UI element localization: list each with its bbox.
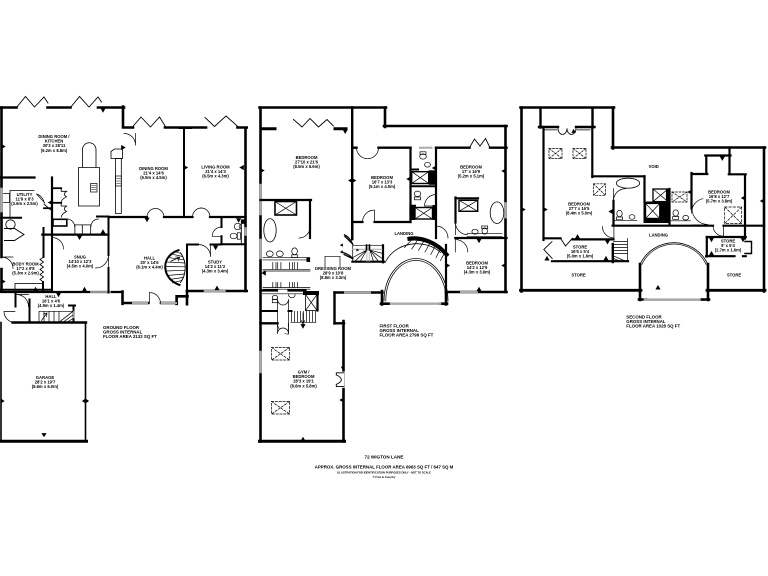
svg-text:APPROX. GROSS INTERNAL FLOOR A: APPROX. GROSS INTERNAL FLOOR AREA 6963 S… <box>315 464 454 469</box>
svg-text:STORE: STORE <box>571 272 586 277</box>
svg-text:LANDING: LANDING <box>394 231 413 236</box>
svg-text:BEDROOM27'10 x 21'6(8.5m x 6.6: BEDROOM27'10 x 21'6(8.5m x 6.6m) <box>293 155 320 169</box>
svg-text:72 WIGTON LANE: 72 WIGTON LANE <box>365 455 404 460</box>
svg-text:© Fine & Country: © Fine & Country <box>373 475 396 479</box>
svg-text:BEDROOM14'2 x 12'9(4.3m x 3.9m: BEDROOM14'2 x 12'9(4.3m x 3.9m) <box>464 261 491 275</box>
svg-text:BEDROOM16'8 x 12'7(5.7m x 3.8m: BEDROOM16'8 x 12'7(5.7m x 3.8m) <box>706 190 733 204</box>
svg-text:LANDING: LANDING <box>649 232 668 237</box>
svg-text:VOID: VOID <box>649 164 659 169</box>
svg-text:ILLUSTRATION FOR IDENTIFICATIO: ILLUSTRATION FOR IDENTIFICATION PURPOSES… <box>337 471 431 475</box>
svg-text:LIVING ROOM21'4 x 14'3(6.5m x: LIVING ROOM21'4 x 14'3(6.5m x 4.3m) <box>201 165 230 179</box>
svg-text:BEDROOM27'7 x 16'5(8.4m x 5.0m: BEDROOM27'7 x 16'5(8.4m x 5.0m) <box>566 202 593 216</box>
svg-text:BEDROOM16'7 x 13'3(5.1m x 4.0m: BEDROOM16'7 x 13'3(5.1m x 4.0m) <box>369 175 396 189</box>
svg-text:STORE: STORE <box>727 272 742 277</box>
